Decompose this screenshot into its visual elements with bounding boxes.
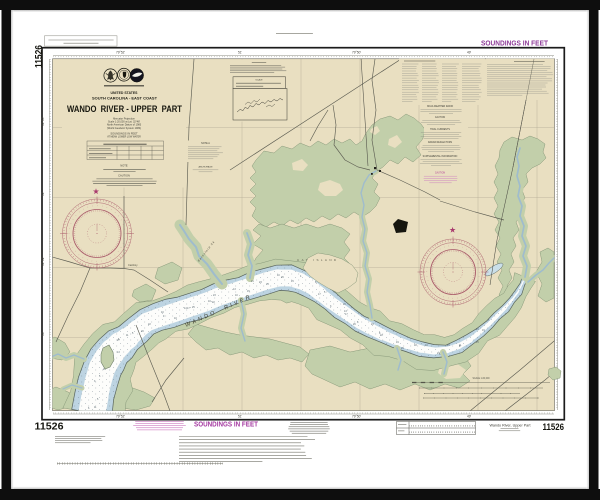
svg-text:32°51': 32°51' [41,257,45,266]
svg-text:SOUNDINGS IN FEET: SOUNDINGS IN FEET [110,131,138,135]
svg-text:SOUNDINGS IN FEET: SOUNDINGS IN FEET [194,420,259,429]
svg-text:UNITED STATES: UNITED STATES [111,91,139,95]
svg-text:NOAA WEATHER RADIO: NOAA WEATHER RADIO [427,105,453,108]
svg-text:51': 51' [238,51,243,55]
svg-text:CAT ISLAND: CAT ISLAND [297,258,338,262]
svg-text:RADAR REFLECTORS: RADAR REFLECTORS [428,141,453,144]
svg-text:WANDO RIVER - UPPER PART: WANDO RIVER - UPPER PART [67,104,183,114]
svg-text:AT MEAN LOWER LOW WATER: AT MEAN LOWER LOW WATER [107,136,141,139]
svg-text:(World Geodetic System 1984): (World Geodetic System 1984) [107,127,141,130]
svg-text:79°50': 79°50' [352,414,361,418]
svg-text:ANCHORAGE: ANCHORAGE [198,166,213,169]
svg-text:Wando River, Upper Part: Wando River, Upper Part [490,423,531,427]
svg-text:79°52': 79°52' [116,414,125,418]
svg-text:79°50': 79°50' [352,51,361,55]
svg-text:SCALE 1:20,000: SCALE 1:20,000 [472,377,490,380]
svg-text:Cainhoy: Cainhoy [128,263,138,267]
svg-text:TIDAL CURRENTS: TIDAL CURRENTS [430,128,450,131]
svg-text:79°52': 79°52' [116,51,125,55]
svg-text:49': 49' [467,51,472,55]
svg-text:51': 51' [238,414,243,418]
svg-text:49': 49' [467,414,472,418]
svg-text:CAUTION: CAUTION [435,116,446,119]
svg-text:50': 50' [41,331,45,336]
svg-text:11526: 11526 [35,422,65,433]
svg-text:CAUTION: CAUTION [118,173,130,177]
svg-text:11526: 11526 [543,422,565,432]
svg-text:CAUTION: CAUTION [435,172,446,175]
svg-text:NOTE: NOTE [120,164,127,168]
svg-text:SCALE: SCALE [255,78,263,81]
svg-text:SOUNDINGS IN FEET: SOUNDINGS IN FEET [481,38,548,47]
svg-text:52': 52' [41,191,45,196]
svg-text:32°53': 32°53' [41,117,45,126]
svg-text:11526: 11526 [34,44,45,68]
svg-text:SUPPLEMENTAL INFORMATION: SUPPLEMENTAL INFORMATION [423,155,458,158]
svg-text:SOUTH CAROLINA - EAST COAST: SOUTH CAROLINA - EAST COAST [92,97,158,101]
svg-text:NOTE A: NOTE A [201,142,210,145]
